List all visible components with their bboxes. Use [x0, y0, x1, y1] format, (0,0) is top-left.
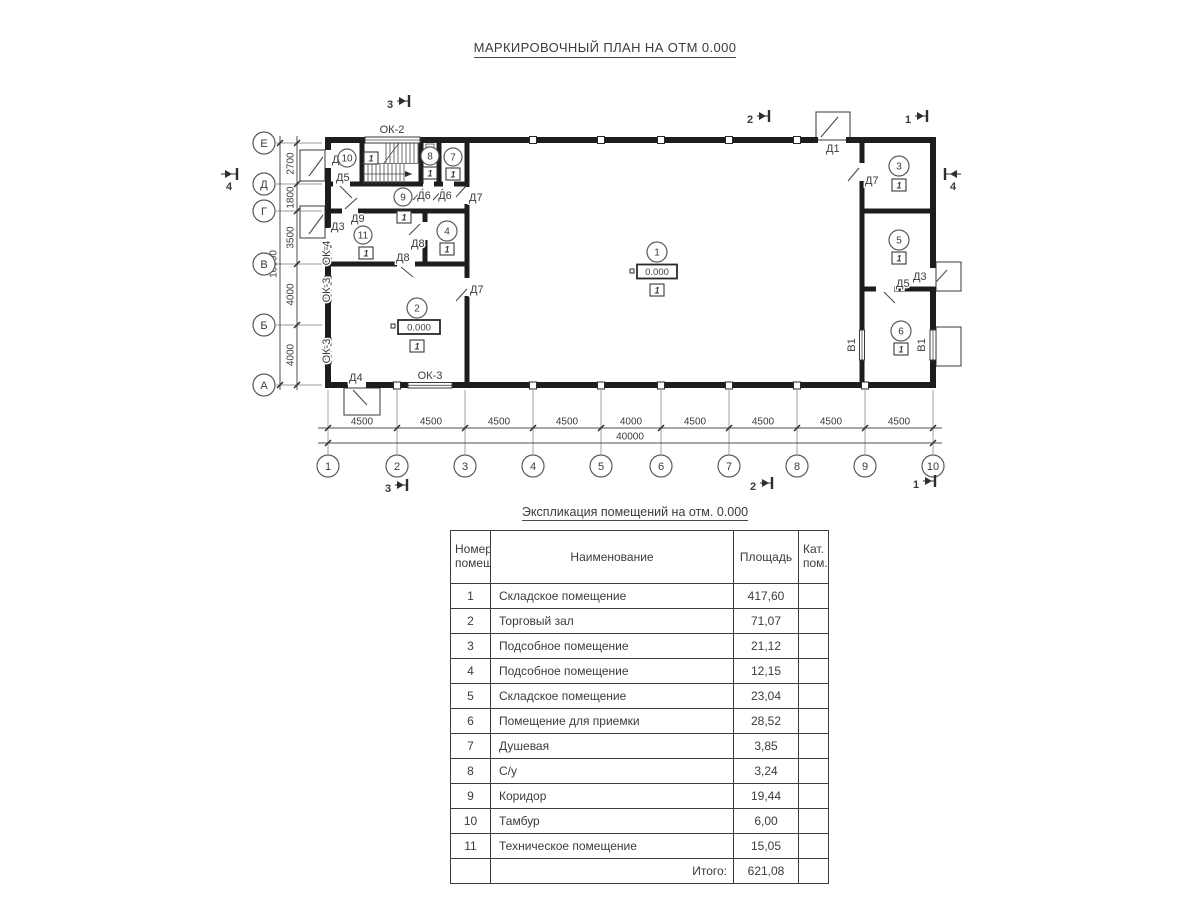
table-cell-cat	[799, 809, 829, 834]
table-row: 10Тамбур6,00	[451, 809, 829, 834]
table-row: 1Складское помещение417,60	[451, 584, 829, 609]
window-label-ok3: ОК-3	[321, 278, 333, 303]
table-cell-num: 8	[451, 759, 491, 784]
dimension-label: 4000	[286, 283, 297, 306]
table-row: 11Техническое помещение15,05	[451, 834, 829, 859]
category-mark: 1	[654, 286, 659, 296]
door-label-d3: Д3	[913, 271, 927, 283]
axis-label: А	[260, 380, 268, 392]
room-number: 5	[896, 236, 902, 247]
door-label-d5: Д5	[336, 172, 350, 184]
table-cell-cat	[799, 734, 829, 759]
header-room-category: Кат. пом.	[799, 531, 829, 584]
table-cell-name: Подсобное помещение	[491, 634, 734, 659]
dimension-label: 4500	[684, 417, 707, 428]
section-marker: 4	[950, 181, 957, 193]
table-header-row: Номер помещ. Наименование Площадь Кат. п…	[451, 531, 829, 584]
dimension-label: 4500	[820, 417, 843, 428]
drawing-sheet: { "page": { "title_plan": "МАРКИРОВОЧНЫЙ…	[0, 0, 1200, 900]
left-extension-lines	[276, 143, 322, 385]
table-cell-name: Складское помещение	[491, 684, 734, 709]
dimension-label: 2700	[286, 152, 297, 175]
table-cell-area: 28,52	[734, 709, 799, 734]
axis-label: 10	[927, 461, 939, 473]
floor-plan: ОК-2 Д1 Д2 Д5 Д9 Д3 Д6 Д6 Д7 Д8 Д8 Д7 Д7…	[0, 0, 1200, 500]
section-marker: 2	[750, 481, 756, 493]
axis-label: 2	[394, 461, 400, 473]
table-cell-num: 4	[451, 659, 491, 684]
total-value: 621,08	[734, 859, 799, 884]
table-cell-area: 3,24	[734, 759, 799, 784]
axis-label: 5	[598, 461, 604, 473]
room-number: 10	[341, 154, 353, 165]
table-cell-cat	[799, 784, 829, 809]
axis-label: Д	[260, 179, 268, 191]
axis-label: Г	[261, 206, 267, 218]
table-cell-num: 5	[451, 684, 491, 709]
section-marker: 1	[905, 114, 911, 126]
axis-label: 6	[658, 461, 664, 473]
dimension-label: 4500	[556, 417, 579, 428]
dimension-label: 4500	[752, 417, 775, 428]
total-cat-cell	[799, 859, 829, 884]
section-marker: 1	[913, 479, 919, 491]
door-label-d7: Д7	[470, 284, 484, 296]
dimension-label: 1800	[286, 186, 297, 209]
table-cell-area: 6,00	[734, 809, 799, 834]
axis-label: 8	[794, 461, 800, 473]
table-cell-area: 71,07	[734, 609, 799, 634]
axis-label: 4	[530, 461, 536, 473]
table-cell-num: 1	[451, 584, 491, 609]
axis-label: 1	[325, 461, 331, 473]
category-mark: 1	[414, 342, 419, 352]
total-label: Итого:	[491, 859, 734, 884]
door-label-d6: Д6	[438, 190, 452, 202]
dimension-label: 4500	[351, 417, 374, 428]
gate-label-v1: В1	[846, 338, 858, 351]
table-cell-area: 15,05	[734, 834, 799, 859]
window-label-ok3: ОК-3	[321, 339, 333, 364]
table-cell-cat	[799, 584, 829, 609]
window-label-ok3: ОК-3	[418, 370, 443, 382]
door-label-d5: Д5	[896, 278, 910, 290]
table-cell-cat	[799, 709, 829, 734]
room-number: 7	[450, 153, 456, 164]
category-mark: 1	[368, 154, 373, 164]
dimension-label: 4000	[286, 343, 297, 366]
table-cell-num: 10	[451, 809, 491, 834]
room-number: 11	[358, 231, 369, 242]
table-cell-name: Душевая	[491, 734, 734, 759]
table-cell-name: Торговый зал	[491, 609, 734, 634]
door-label-d7: Д7	[469, 192, 483, 204]
elevation-mark: 0.000	[645, 267, 669, 278]
table-cell-area: 3,85	[734, 734, 799, 759]
axis-label: 3	[462, 461, 468, 473]
table-row: 7Душевая3,85	[451, 734, 829, 759]
axis-label: 7	[726, 461, 732, 473]
table-cell-name: Техническое помещение	[491, 834, 734, 859]
dimension-label: 4000	[620, 417, 643, 428]
row-axis-bubbles: Е Д Г В Б А	[253, 132, 275, 396]
table-cell-name: Тамбур	[491, 809, 734, 834]
door-label-d1: Д1	[826, 143, 840, 155]
table-row: 3Подсобное помещение21,12	[451, 634, 829, 659]
category-mark: 1	[896, 254, 901, 264]
table-body: 1Складское помещение417,602Торговый зал7…	[451, 584, 829, 859]
table-cell-area: 21,12	[734, 634, 799, 659]
table-cell-cat	[799, 659, 829, 684]
header-room-name: Наименование	[491, 531, 734, 584]
table-cell-name: С/у	[491, 759, 734, 784]
table-cell-num: 11	[451, 834, 491, 859]
room-schedule: Номер помещ. Наименование Площадь Кат. п…	[450, 530, 829, 884]
table-cell-num: 9	[451, 784, 491, 809]
dimension-label: 3500	[286, 226, 297, 249]
table-cell-num: 2	[451, 609, 491, 634]
bottom-dimensions: 4500 4500 4500 4500 4000 4500 4500 4500 …	[318, 417, 942, 447]
category-mark: 1	[450, 170, 455, 180]
header-room-number: Номер помещ.	[451, 531, 491, 584]
category-mark: 1	[363, 249, 368, 259]
room-number: 8	[427, 152, 433, 163]
door-label-d8: Д8	[396, 252, 410, 264]
table-cell-name: Подсобное помещение	[491, 659, 734, 684]
door-label-d4: Д4	[349, 372, 363, 384]
door-label-d3: Д3	[331, 221, 345, 233]
section-marker: 3	[385, 483, 391, 495]
dimension-label: 4500	[420, 417, 443, 428]
room-number: 2	[414, 304, 420, 315]
table-cell-cat	[799, 684, 829, 709]
dimension-label: 4500	[888, 417, 911, 428]
axis-label: Б	[260, 320, 267, 332]
total-empty-cell	[451, 859, 491, 884]
table-cell-area: 417,60	[734, 584, 799, 609]
table-cell-cat	[799, 759, 829, 784]
table-total-row: Итого: 621,08	[451, 859, 829, 884]
table-title: Экспликация помещений на отм. 0.000	[455, 505, 815, 519]
table-cell-name: Складское помещение	[491, 584, 734, 609]
room-schedule-table: Номер помещ. Наименование Площадь Кат. п…	[450, 530, 829, 884]
table-cell-num: 6	[451, 709, 491, 734]
door-label-d9: Д9	[351, 213, 365, 225]
door-label-d6: Д6	[417, 190, 431, 202]
category-mark: 1	[401, 213, 406, 223]
table-cell-cat	[799, 634, 829, 659]
header-room-area: Площадь	[734, 531, 799, 584]
table-cell-area: 12,15	[734, 659, 799, 684]
category-mark: 1	[444, 245, 449, 255]
table-row: 4Подсобное помещение12,15	[451, 659, 829, 684]
section-marker: 2	[747, 114, 753, 126]
table-cell-name: Коридор	[491, 784, 734, 809]
table-row: 8С/у3,24	[451, 759, 829, 784]
table-cell-name: Помещение для приемки	[491, 709, 734, 734]
column-axis-bubbles: 1 2 3 4 5 6 7 8 9 10	[317, 455, 944, 477]
table-row: 2Торговый зал71,07	[451, 609, 829, 634]
table-cell-cat	[799, 834, 829, 859]
dimension-total-label: 40000	[616, 432, 644, 443]
window-label-ok2: ОК-2	[380, 124, 405, 136]
section-marker: 3	[387, 99, 393, 111]
room-number: 1	[654, 248, 660, 259]
room-number: 6	[898, 327, 904, 338]
door-label-d7: Д7	[865, 175, 879, 187]
table-cell-num: 3	[451, 634, 491, 659]
category-mark: 1	[898, 345, 903, 355]
table-cell-cat	[799, 609, 829, 634]
dimension-label: 4500	[488, 417, 511, 428]
table-row: 5Складское помещение23,04	[451, 684, 829, 709]
window-label-ok4: ОК-4	[321, 241, 333, 266]
table-cell-area: 23,04	[734, 684, 799, 709]
room-number: 4	[444, 227, 450, 238]
gate-label-v1: В1	[916, 338, 928, 351]
axis-label: 9	[862, 461, 868, 473]
axis-label: Е	[260, 138, 267, 150]
table-row: 9Коридор19,44	[451, 784, 829, 809]
room-number: 9	[400, 193, 406, 204]
table-row: 6Помещение для приемки28,52	[451, 709, 829, 734]
table-cell-num: 7	[451, 734, 491, 759]
axis-label: В	[260, 259, 267, 271]
door-label-d8: Д8	[411, 238, 425, 250]
category-mark: 1	[896, 181, 901, 191]
table-cell-area: 19,44	[734, 784, 799, 809]
room-number: 3	[896, 162, 902, 173]
section-marker: 4	[226, 181, 233, 193]
category-mark: 1	[427, 169, 432, 179]
elevation-mark: 0.000	[407, 323, 431, 334]
